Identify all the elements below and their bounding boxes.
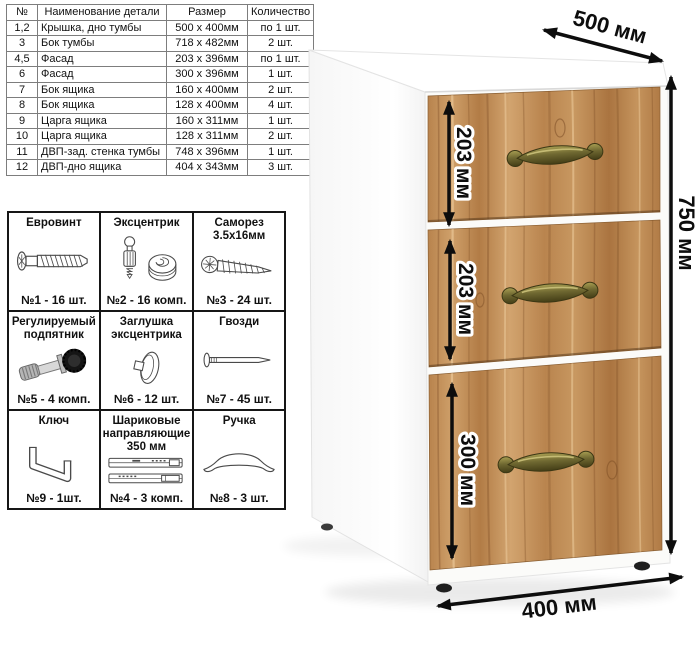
floor-shadow xyxy=(325,578,675,606)
cabinet-foot xyxy=(321,524,333,531)
height-dimension-label: 750 мм xyxy=(674,195,699,270)
cabinet-illustration: 500 мм 750 мм 400 мм 203 мм 203 мм 300 м… xyxy=(0,0,700,648)
drawer3-dimension-label: 300 мм xyxy=(456,434,479,506)
cabinet-foot xyxy=(436,584,452,593)
drawer1-dimension-label: 203 мм xyxy=(452,127,475,199)
drawer2-dimension-label: 203 мм xyxy=(454,263,477,335)
depth-dimension-label: 500 мм xyxy=(570,5,649,49)
assembly-instruction-sheet: № Наименование детали Размер Количество … xyxy=(0,0,700,648)
cabinet-foot xyxy=(634,562,650,571)
cabinet-side-panel xyxy=(309,50,430,583)
